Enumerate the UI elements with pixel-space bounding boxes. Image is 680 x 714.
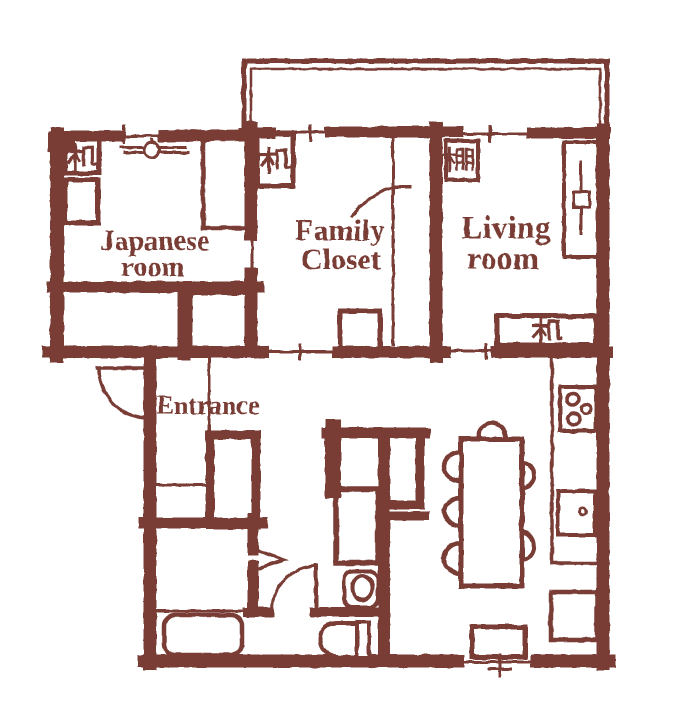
svg-text:room: room — [467, 240, 540, 276]
svg-text:Entrance: Entrance — [157, 391, 260, 420]
svg-text:Closet: Closet — [301, 243, 381, 276]
svg-text:room: room — [121, 252, 184, 283]
